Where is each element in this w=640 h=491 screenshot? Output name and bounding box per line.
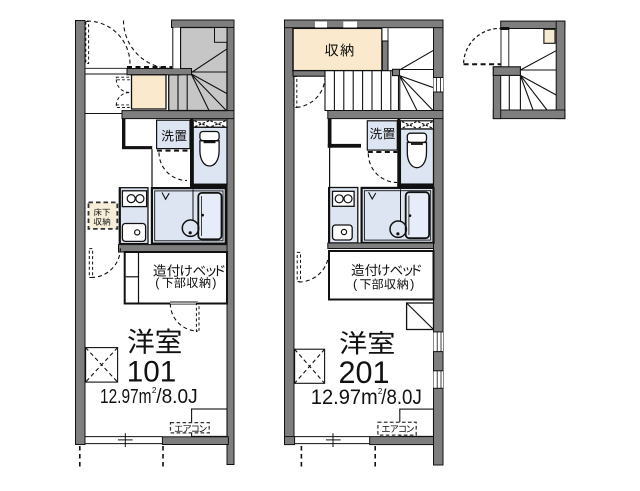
svg-text:12.97m: 12.97m [100, 386, 152, 408]
svg-text:): ) [212, 276, 216, 290]
svg-text:): ) [410, 278, 414, 292]
svg-text:12.97m: 12.97m [311, 385, 378, 409]
svg-text:/8.0J: /8.0J [156, 386, 197, 408]
svg-text:101: 101 [127, 355, 177, 388]
svg-text:/8.0J: /8.0J [381, 385, 422, 409]
